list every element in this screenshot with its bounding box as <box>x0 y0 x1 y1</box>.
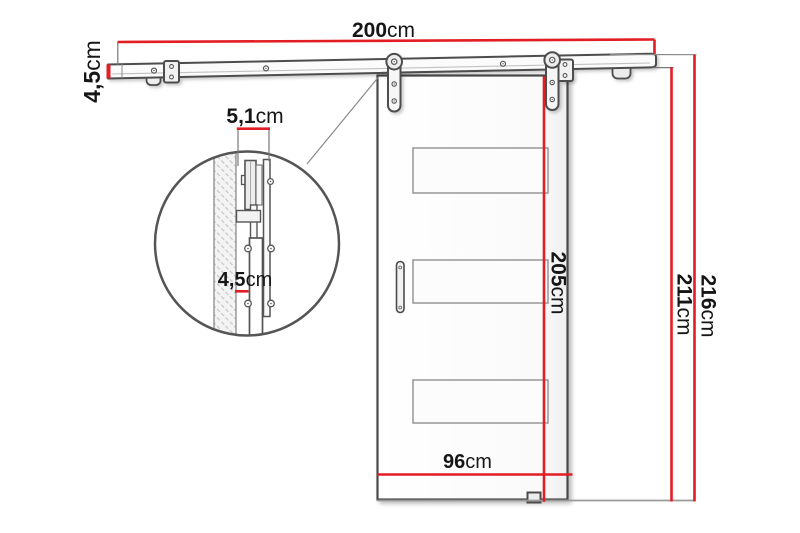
dim-rail-height: 4,5cm <box>79 40 111 103</box>
door-handle <box>397 262 405 313</box>
door-window-cutout-1 <box>413 148 548 193</box>
dim-total-height-label: 216cm <box>697 274 720 337</box>
wall-section-hatch <box>214 150 236 338</box>
dim-under-rail-height-label: 211cm <box>673 274 696 336</box>
dim-rail-height-label: 4,5cm <box>79 40 105 103</box>
door-window-cutout-3 <box>413 380 548 423</box>
wall-bracket-left <box>164 61 179 83</box>
detail-circle: 4,5cm <box>155 150 339 338</box>
diagram-canvas: 4,5cm 5,1cm 200cm 4,5cm 205cm 211cm 216c… <box>0 0 800 533</box>
detail-leader-line <box>307 77 379 164</box>
dim-hardware-depth-label: 5,1cm <box>226 105 283 128</box>
sliding-door-diagram: 4,5cm 5,1cm 200cm 4,5cm 205cm 211cm 216c… <box>0 0 800 533</box>
dim-door-width-label: 96cm <box>443 451 492 473</box>
door-window-cutout-2 <box>413 260 548 303</box>
dim-under-rail-height: 211cm <box>653 67 696 501</box>
door-panel <box>378 76 568 503</box>
dim-detail-thickness-label: 4,5cm <box>218 269 272 291</box>
dim-door-height-label: 205cm <box>547 251 570 314</box>
dim-total-height: 216cm <box>610 54 720 501</box>
door-hanger-left <box>386 54 402 112</box>
door-hanger-right <box>544 52 560 110</box>
dim-rail-length-label: 200cm <box>352 19 415 42</box>
